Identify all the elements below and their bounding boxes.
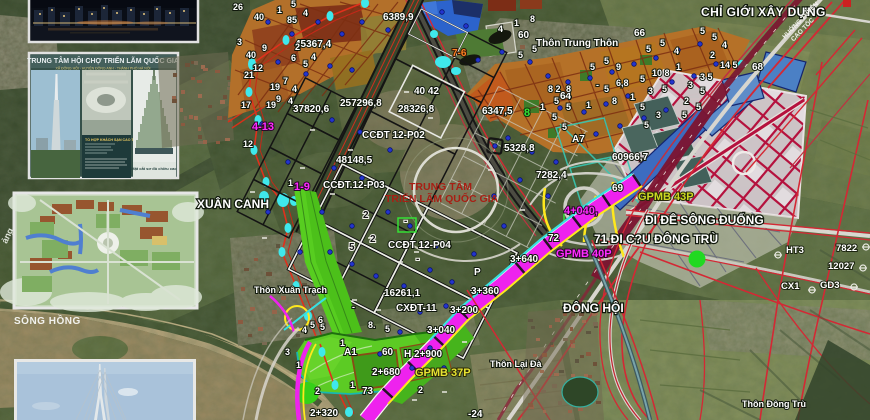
svg-text:5: 5 xyxy=(604,84,609,94)
svg-text:3 5: 3 5 xyxy=(700,72,713,82)
svg-text:4: 4 xyxy=(302,325,307,335)
svg-text:5: 5 xyxy=(700,86,705,96)
svg-text:-: - xyxy=(352,302,355,312)
svg-text:4+040,: 4+040, xyxy=(564,205,598,217)
svg-text:-: - xyxy=(404,216,407,227)
svg-text:68: 68 xyxy=(752,62,764,73)
svg-text:1: 1 xyxy=(586,100,591,110)
svg-text:5: 5 xyxy=(554,96,559,106)
svg-text:1: 1 xyxy=(296,360,301,370)
svg-text:A1: A1 xyxy=(344,347,357,358)
svg-text:48148,5: 48148,5 xyxy=(336,155,373,166)
svg-text:1: 1 xyxy=(288,178,293,188)
svg-text:TRIỂN LÃM QUỐC GIA: TRIỂN LÃM QUỐC GIA xyxy=(385,191,499,205)
svg-text:5: 5 xyxy=(682,110,687,120)
svg-text:7: 7 xyxy=(283,76,288,86)
svg-text:H 2+900: H 2+900 xyxy=(404,349,443,360)
svg-text:P: P xyxy=(474,267,481,278)
svg-text:3+640: 3+640 xyxy=(510,254,539,265)
svg-text:4: 4 xyxy=(498,24,503,34)
svg-text:XUÂN CANH: XUÂN CANH xyxy=(197,196,269,211)
svg-text:5: 5 xyxy=(552,112,557,122)
svg-text:5: 5 xyxy=(712,32,717,42)
svg-text:12: 12 xyxy=(243,139,253,149)
svg-text:4-13: 4-13 xyxy=(252,121,274,133)
svg-text:45367,4: 45367,4 xyxy=(295,39,332,50)
svg-text:4: 4 xyxy=(722,40,727,50)
svg-text:10 8: 10 8 xyxy=(652,68,670,78)
svg-text:GPMB 37P: GPMB 37P xyxy=(415,367,471,379)
svg-text:2+320: 2+320 xyxy=(310,408,339,419)
svg-text:60966,7: 60966,7 xyxy=(612,152,649,163)
svg-text:GPMB 40P: GPMB 40P xyxy=(556,248,612,260)
svg-text:2: 2 xyxy=(418,385,423,395)
svg-text:9: 9 xyxy=(262,43,267,53)
svg-text:3+360: 3+360 xyxy=(471,286,500,297)
svg-text:1: 1 xyxy=(540,102,545,112)
svg-text:5: 5 xyxy=(660,38,665,48)
svg-text:2: 2 xyxy=(363,210,369,221)
svg-text:3+040: 3+040 xyxy=(427,325,456,336)
svg-text:40: 40 xyxy=(246,50,256,60)
svg-text:Mặt cắt sơ đồ chiều cao: Mặt cắt sơ đồ chiều cao xyxy=(131,166,177,171)
svg-text:HT3: HT3 xyxy=(786,245,804,256)
svg-text:2+680: 2+680 xyxy=(372,367,401,378)
svg-text:4: 4 xyxy=(288,96,293,106)
svg-text:4: 4 xyxy=(674,46,679,56)
svg-text:5: 5 xyxy=(303,59,308,69)
svg-text:19: 19 xyxy=(270,82,280,92)
svg-text:4: 4 xyxy=(292,84,297,94)
svg-text:5: 5 xyxy=(562,122,567,132)
svg-text:8: 8 xyxy=(566,84,571,94)
svg-text:72: 72 xyxy=(548,233,560,244)
svg-text:9: 9 xyxy=(616,62,621,72)
svg-text:1: 1 xyxy=(514,18,519,28)
svg-text:A7: A7 xyxy=(572,134,585,145)
svg-text:8: 8 xyxy=(530,14,535,24)
svg-text:Thôn Trung Thôn: Thôn Trung Thôn xyxy=(536,38,618,49)
svg-text:5: 5 xyxy=(385,324,390,334)
svg-text:2: 2 xyxy=(295,42,300,52)
svg-text:3: 3 xyxy=(237,37,242,47)
svg-text:5: 5 xyxy=(604,56,609,66)
svg-text:60: 60 xyxy=(382,347,394,358)
svg-text:4: 4 xyxy=(311,52,316,62)
svg-text:5: 5 xyxy=(349,242,355,253)
svg-text:69: 69 xyxy=(612,183,624,194)
svg-text:5: 5 xyxy=(696,102,701,112)
svg-text:5: 5 xyxy=(644,120,649,130)
svg-text:5: 5 xyxy=(291,0,296,9)
svg-text:ĐI ĐÊ SÔNG ĐUỐNG: ĐI ĐÊ SÔNG ĐUỐNG xyxy=(645,212,764,227)
svg-text:5328,8: 5328,8 xyxy=(504,143,535,154)
svg-text:1: 1 xyxy=(676,62,681,72)
svg-text:12027: 12027 xyxy=(828,261,854,272)
svg-text:6: 6 xyxy=(291,53,296,63)
svg-text:5: 5 xyxy=(700,26,705,36)
svg-text:71 ĐI C?U ĐÔNG TRÙ: 71 ĐI C?U ĐÔNG TRÙ xyxy=(594,231,718,246)
svg-text:4: 4 xyxy=(303,8,308,18)
svg-text:6389,9: 6389,9 xyxy=(383,12,414,23)
svg-text:3: 3 xyxy=(688,80,693,90)
svg-text:16261,1: 16261,1 xyxy=(384,288,421,299)
svg-text:2: 2 xyxy=(684,96,689,106)
svg-text:6,8: 6,8 xyxy=(616,78,629,88)
svg-text:6: 6 xyxy=(318,315,323,325)
svg-text:TRUNG TÂM: TRUNG TÂM xyxy=(409,180,472,193)
svg-text:SÔNG HỒNG: SÔNG HỒNG xyxy=(14,314,81,327)
svg-text:14 5: 14 5 xyxy=(720,60,738,70)
svg-text:3: 3 xyxy=(648,86,653,96)
svg-text:2: 2 xyxy=(710,50,715,60)
svg-text:37820,6: 37820,6 xyxy=(293,104,330,115)
svg-text:8: 8 xyxy=(612,96,617,106)
svg-text:8 2: 8 2 xyxy=(548,84,561,94)
svg-text:5: 5 xyxy=(646,44,651,54)
svg-text:-24: -24 xyxy=(468,409,483,420)
svg-text:CCĐT.12-P03: CCĐT.12-P03 xyxy=(323,180,385,191)
svg-text:CXĐT-11: CXĐT-11 xyxy=(396,303,437,314)
svg-text:17: 17 xyxy=(241,100,251,110)
svg-text:ĐÔNG HỘI: ĐÔNG HỘI xyxy=(563,300,624,315)
svg-text:GPMB 43P: GPMB 43P xyxy=(638,191,694,203)
svg-text:CX1: CX1 xyxy=(781,281,800,292)
svg-text:8.: 8. xyxy=(368,320,376,330)
svg-text:CCĐT 12-P04: CCĐT 12-P04 xyxy=(388,240,451,251)
svg-text:257296,8: 257296,8 xyxy=(340,98,382,109)
svg-text:19: 19 xyxy=(266,100,276,110)
svg-text:5: 5 xyxy=(662,84,667,94)
svg-text:40 42: 40 42 xyxy=(414,86,439,97)
svg-text:Thôn Xuân Trạch: Thôn Xuân Trạch xyxy=(254,285,327,295)
svg-text:1: 1 xyxy=(340,338,345,348)
svg-text:26: 26 xyxy=(233,2,243,12)
svg-text:-: - xyxy=(416,254,419,265)
svg-text:XÃ ĐÔNG HỘI - HUYỆN ĐÔNG ANH -: XÃ ĐÔNG HỘI - HUYỆN ĐÔNG ANH - THÀNH PHỐ… xyxy=(55,66,150,71)
svg-text:1-9: 1-9 xyxy=(294,181,310,193)
svg-text:3: 3 xyxy=(285,347,290,357)
svg-text:12: 12 xyxy=(253,63,263,73)
svg-text:-: - xyxy=(596,80,599,90)
svg-text:60: 60 xyxy=(518,30,530,41)
svg-text:5: 5 xyxy=(518,50,523,60)
svg-text:28326,8: 28326,8 xyxy=(398,104,435,115)
svg-text:3+200: 3+200 xyxy=(450,305,479,316)
svg-text:5: 5 xyxy=(566,102,571,112)
svg-text:7822: 7822 xyxy=(836,243,857,254)
svg-text:1: 1 xyxy=(277,5,282,15)
svg-text:5: 5 xyxy=(590,62,595,72)
svg-text:1: 1 xyxy=(350,380,355,390)
svg-text:3: 3 xyxy=(656,110,661,120)
svg-text:85: 85 xyxy=(287,15,297,25)
svg-text:CCĐT 12-P02: CCĐT 12-P02 xyxy=(362,130,425,141)
svg-text:5: 5 xyxy=(640,102,645,112)
svg-text:9: 9 xyxy=(276,94,281,104)
svg-text:66: 66 xyxy=(634,28,646,39)
svg-text:73: 73 xyxy=(362,386,374,397)
svg-text:1: 1 xyxy=(630,92,635,102)
svg-text:8: 8 xyxy=(524,107,530,119)
svg-text:5: 5 xyxy=(310,320,315,330)
svg-text:5: 5 xyxy=(640,74,645,84)
svg-text:7-6: 7-6 xyxy=(452,48,467,59)
svg-text:2: 2 xyxy=(370,234,376,245)
svg-text:Thôn Lại Đà: Thôn Lại Đà xyxy=(490,359,542,369)
svg-text:6347,5: 6347,5 xyxy=(482,106,513,117)
svg-text:7282,4: 7282,4 xyxy=(536,170,567,181)
svg-text:GD3: GD3 xyxy=(820,280,840,291)
svg-text:2: 2 xyxy=(315,386,320,396)
svg-text:Thôn Đông Trù: Thôn Đông Trù xyxy=(742,399,806,409)
svg-text:40: 40 xyxy=(254,12,264,22)
